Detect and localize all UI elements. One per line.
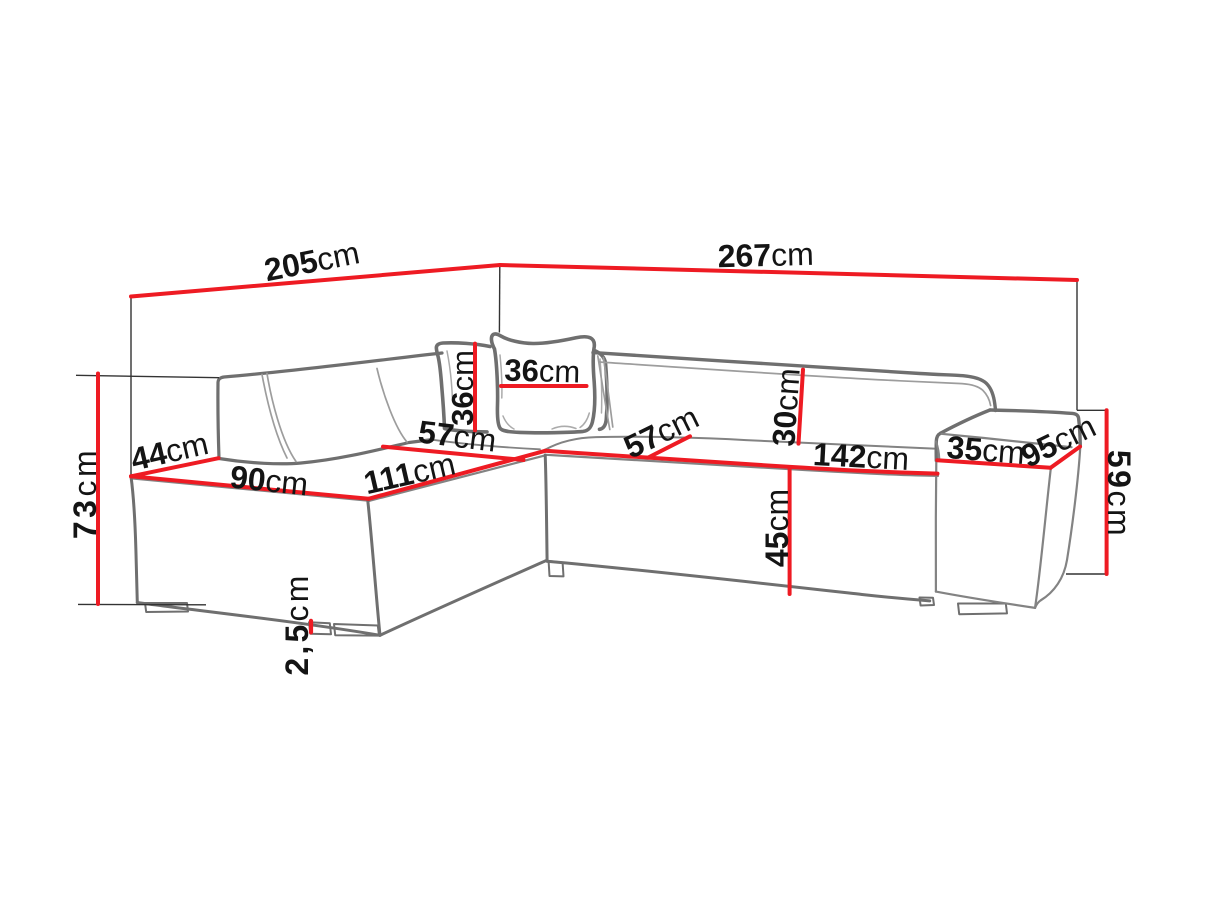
- svg-text:59cm: 59cm: [1101, 450, 1137, 538]
- svg-text:142cm: 142cm: [812, 436, 910, 477]
- svg-text:2,5cm: 2,5cm: [279, 572, 315, 675]
- svg-text:36cm: 36cm: [504, 353, 581, 390]
- svg-text:35cm: 35cm: [945, 429, 1026, 471]
- svg-text:45cm: 45cm: [759, 489, 795, 567]
- svg-text:36cm: 36cm: [445, 350, 480, 426]
- svg-text:267cm: 267cm: [717, 236, 814, 275]
- svg-text:73cm: 73cm: [67, 447, 103, 539]
- svg-text:30cm: 30cm: [765, 367, 806, 448]
